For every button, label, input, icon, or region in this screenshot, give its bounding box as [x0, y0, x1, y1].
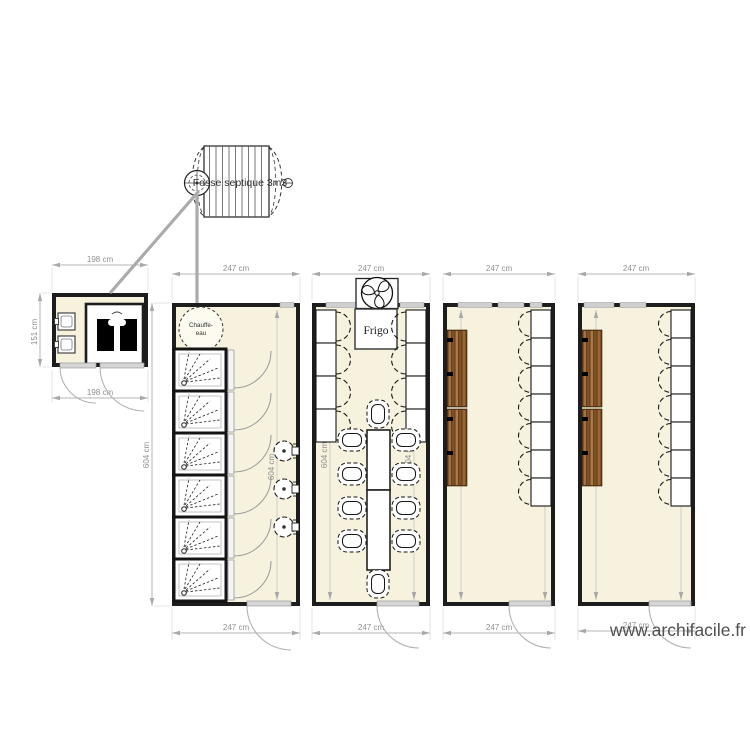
door[interactable] — [100, 363, 144, 411]
dining-room[interactable]: 604 cm 604 cm Frigo — [312, 278, 430, 649]
shower-room[interactable]: Chauffe- eau 604 cm — [172, 303, 300, 651]
watermark: www.archifacile.fr — [609, 620, 746, 640]
washbasin[interactable] — [55, 313, 76, 330]
dim-label: 247 cm — [486, 264, 513, 273]
dim-label: 604 cm — [320, 442, 329, 469]
water-heater[interactable]: Chauffe- eau — [179, 307, 223, 351]
water-heater-label: Chauffe- — [189, 322, 213, 329]
extractor-fan[interactable] — [356, 278, 398, 310]
armchair[interactable] — [338, 429, 366, 451]
dim-label: 604 cm — [267, 454, 276, 481]
dim-label: 151 cm — [30, 319, 39, 346]
armchair[interactable] — [367, 400, 389, 428]
bunk-bed[interactable] — [582, 409, 602, 486]
window[interactable] — [620, 303, 646, 308]
bunk-bed[interactable] — [447, 409, 467, 486]
armchair[interactable] — [338, 530, 366, 552]
door[interactable] — [509, 601, 551, 648]
round-washbasin[interactable] — [274, 441, 299, 461]
armchair[interactable] — [392, 463, 420, 485]
armchair[interactable] — [392, 530, 420, 552]
pipe-to-wc-room[interactable] — [111, 192, 198, 292]
washbasin[interactable] — [55, 336, 76, 353]
dim-label: 247 cm — [358, 264, 385, 273]
water-heater-label: eau — [196, 330, 207, 337]
dining-table[interactable] — [367, 430, 390, 570]
armchair[interactable] — [338, 463, 366, 485]
window[interactable] — [498, 303, 524, 308]
window[interactable] — [280, 303, 294, 308]
armchair[interactable] — [392, 429, 420, 451]
bunk-bed[interactable] — [582, 330, 602, 407]
dorm-room-1[interactable]: 604 cm 604 cm — [443, 303, 555, 649]
floor-plan-canvas: 198 cm 151 cm 198 cm 247 cm 247 cm 247 c… — [0, 0, 750, 750]
fridge-label: Frigo — [364, 325, 389, 337]
window[interactable] — [458, 303, 492, 308]
fridge[interactable]: Frigo — [355, 309, 397, 349]
round-washbasin[interactable] — [274, 479, 299, 499]
window[interactable] — [400, 303, 424, 308]
dim-label: 247 cm — [223, 264, 250, 273]
dim-label: 604 cm — [142, 442, 151, 469]
door[interactable] — [247, 601, 291, 650]
water-pipes[interactable] — [111, 192, 198, 310]
door[interactable] — [60, 363, 96, 403]
dorm-room-2[interactable]: 604 cm 604 cm — [578, 303, 695, 649]
dim-label: 247 cm — [623, 264, 650, 273]
armchair[interactable] — [367, 570, 389, 598]
dim-label: 198 cm — [87, 388, 114, 397]
septic-tank[interactable]: Fosse septique 3m3 — [185, 146, 294, 217]
dim-label: 198 cm — [87, 255, 114, 264]
dim-label: 247 cm — [486, 623, 513, 632]
bunk-bed[interactable] — [447, 330, 467, 407]
round-washbasin[interactable] — [274, 517, 299, 537]
window[interactable] — [326, 303, 360, 308]
armchair[interactable] — [392, 497, 420, 519]
dim-label: 247 cm — [223, 623, 250, 632]
armchair[interactable] — [338, 497, 366, 519]
septic-tank-label: Fosse septique 3m3 — [193, 177, 288, 189]
window[interactable] — [530, 303, 542, 308]
window[interactable] — [584, 303, 614, 308]
